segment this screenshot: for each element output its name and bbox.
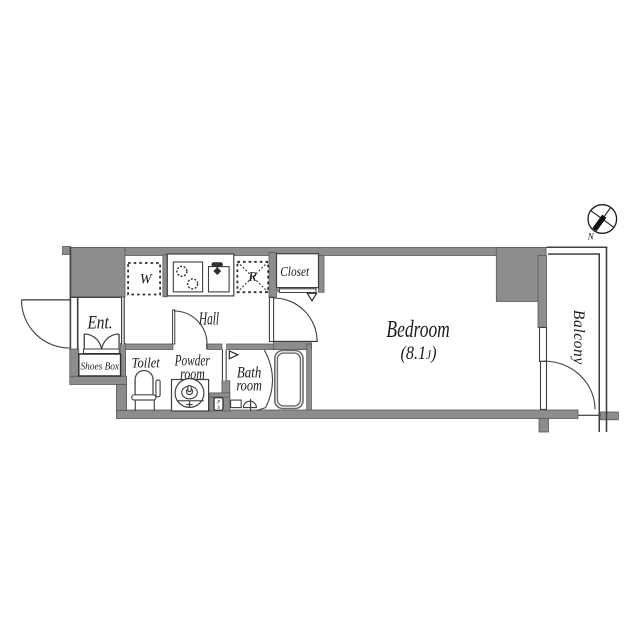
svg-text:room: room xyxy=(236,377,262,395)
svg-text:Bedroom: Bedroom xyxy=(386,315,449,342)
svg-text:N: N xyxy=(587,232,595,242)
svg-text:Shoes Box: Shoes Box xyxy=(81,361,120,372)
svg-text:W: W xyxy=(140,272,153,288)
svg-text:Ent.: Ent. xyxy=(87,312,113,333)
svg-text:R: R xyxy=(247,269,257,284)
svg-text:P: P xyxy=(216,400,220,405)
svg-text:Closet: Closet xyxy=(280,264,309,279)
svg-text:Balcony: Balcony xyxy=(570,310,587,365)
svg-text:(8.1J): (8.1J) xyxy=(401,342,437,364)
svg-text:Toilet: Toilet xyxy=(132,355,161,371)
